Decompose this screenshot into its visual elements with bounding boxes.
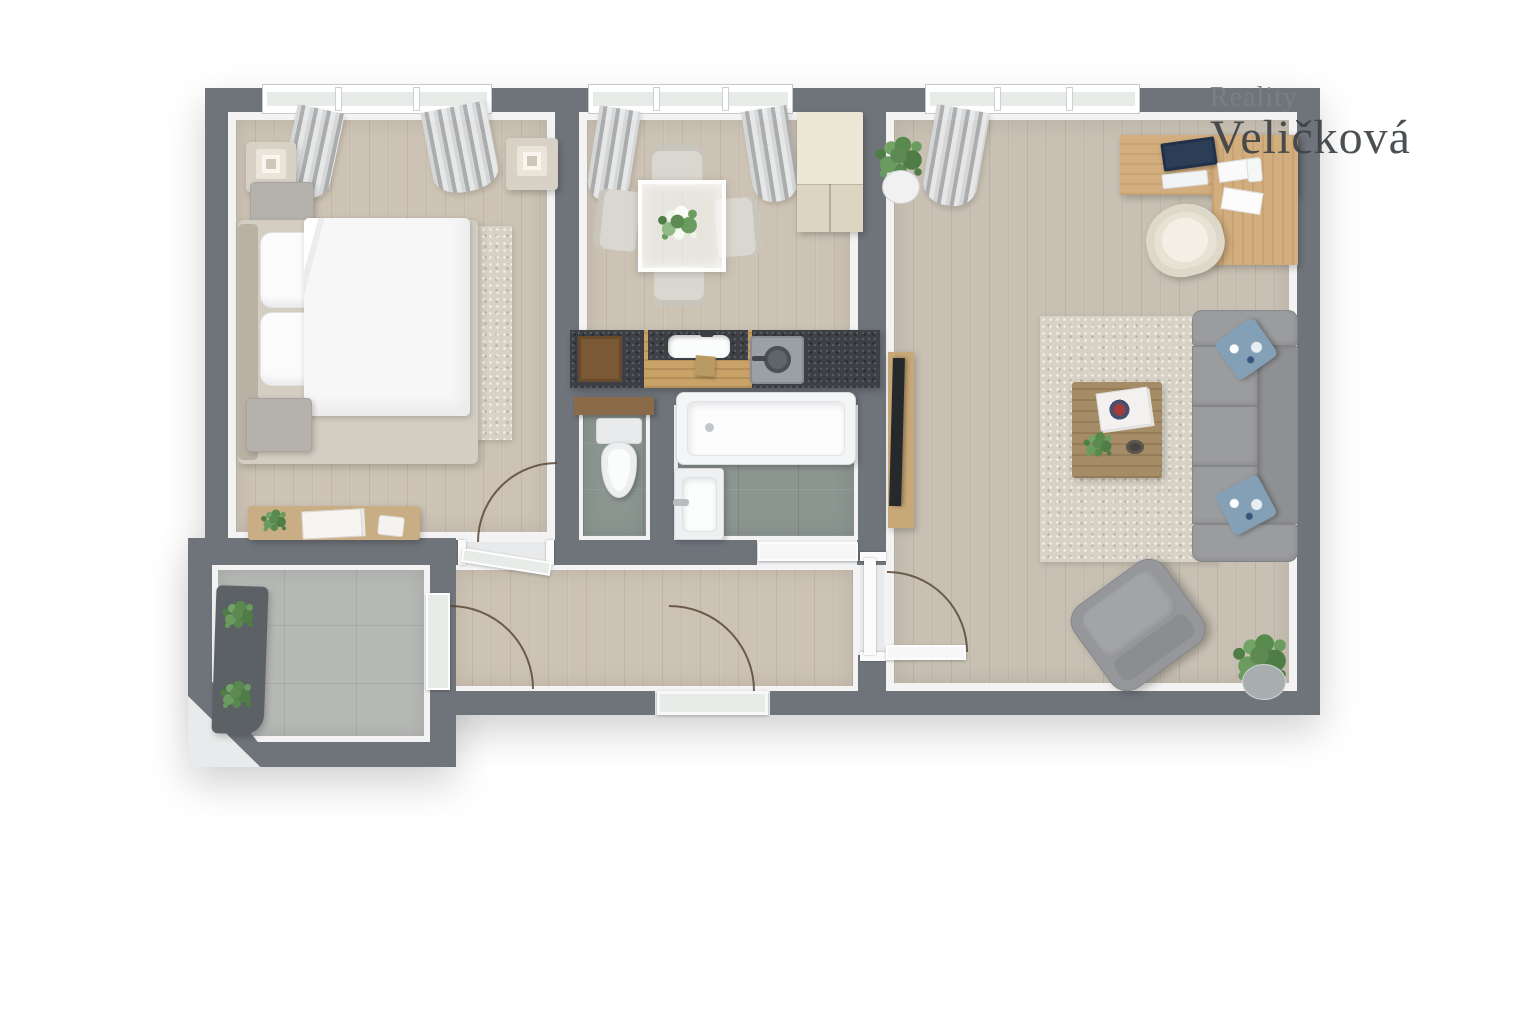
table-lamp-icon [256, 149, 286, 179]
coffee-table-plant [1093, 439, 1103, 449]
counter-cube-board [694, 355, 716, 377]
magazine-cover-art [1108, 398, 1137, 421]
faucet-icon [673, 499, 689, 506]
balcony-door-leaf [426, 593, 450, 690]
wall-bedroom-kitchen [555, 88, 579, 565]
sofa-seat-2 [1192, 406, 1258, 466]
kitchen-tall-cabinet [797, 112, 863, 232]
wall-midsouth-a [205, 540, 462, 565]
stove [750, 336, 804, 384]
wall-right [1297, 88, 1320, 715]
window-mullion [722, 87, 729, 111]
cabinet-door-split [829, 184, 831, 232]
sideboard-object [377, 515, 405, 538]
bathroom-door-leaf [758, 542, 858, 561]
living-plant-top-pot [882, 170, 920, 204]
floor-plan-canvas: Reality Veličková [0, 0, 1536, 1024]
pan-icon [764, 346, 791, 373]
dining-chair-west [593, 188, 641, 252]
wall-bottom-east [770, 691, 1320, 715]
watermark: Reality Veličková [1210, 84, 1411, 162]
living-plant-bottom [1250, 646, 1269, 665]
flower-centerpiece [671, 215, 685, 229]
washbasin [674, 468, 724, 540]
window-mullion [335, 87, 342, 111]
cutting-board [578, 336, 622, 382]
dining-chair-south [654, 266, 704, 306]
window-mullion [653, 87, 660, 111]
bowl [1126, 440, 1144, 454]
living-window-glass [930, 92, 1135, 106]
wc-shelf [574, 397, 654, 415]
kitchen-window-glass [593, 92, 788, 106]
living-door-frame [864, 558, 876, 655]
window-mullion [413, 87, 420, 111]
dining-chair-north [652, 145, 702, 185]
living-plant-top [890, 147, 907, 164]
watermark-line1: Reality [1210, 84, 1411, 112]
hallway-floor [446, 563, 860, 693]
magazines [1096, 387, 1153, 432]
faucet-icon [700, 331, 714, 337]
entrance-door [657, 691, 768, 715]
window-mullion [994, 87, 1001, 111]
bed-duvet [304, 218, 470, 416]
wall-bottom-west [430, 691, 655, 715]
toilet-tank [596, 418, 642, 444]
wall-left [205, 88, 228, 565]
balcony-plant-1 [232, 608, 243, 619]
watermark-line2: Veličková [1210, 114, 1411, 162]
bathtub [676, 392, 856, 465]
table-lamp-icon [517, 146, 547, 176]
wall-midsouth-b [552, 540, 757, 565]
picture-frames [301, 508, 362, 539]
wall-wc-bath-divider [650, 403, 674, 540]
window-mullion [1066, 87, 1073, 111]
pan-handle-icon [752, 356, 766, 361]
living-plant-bottom-pot [1242, 664, 1286, 700]
living-door-leaf [886, 645, 966, 660]
balcony-plant-2 [230, 688, 241, 699]
bed-pouf-bottom [246, 398, 312, 452]
nightstand-right [506, 138, 558, 190]
bathtub-drain-icon [705, 423, 714, 432]
balcony-bench-planter [211, 585, 268, 735]
sideboard-plant [269, 515, 278, 524]
desk-chair-seat [1157, 213, 1212, 267]
